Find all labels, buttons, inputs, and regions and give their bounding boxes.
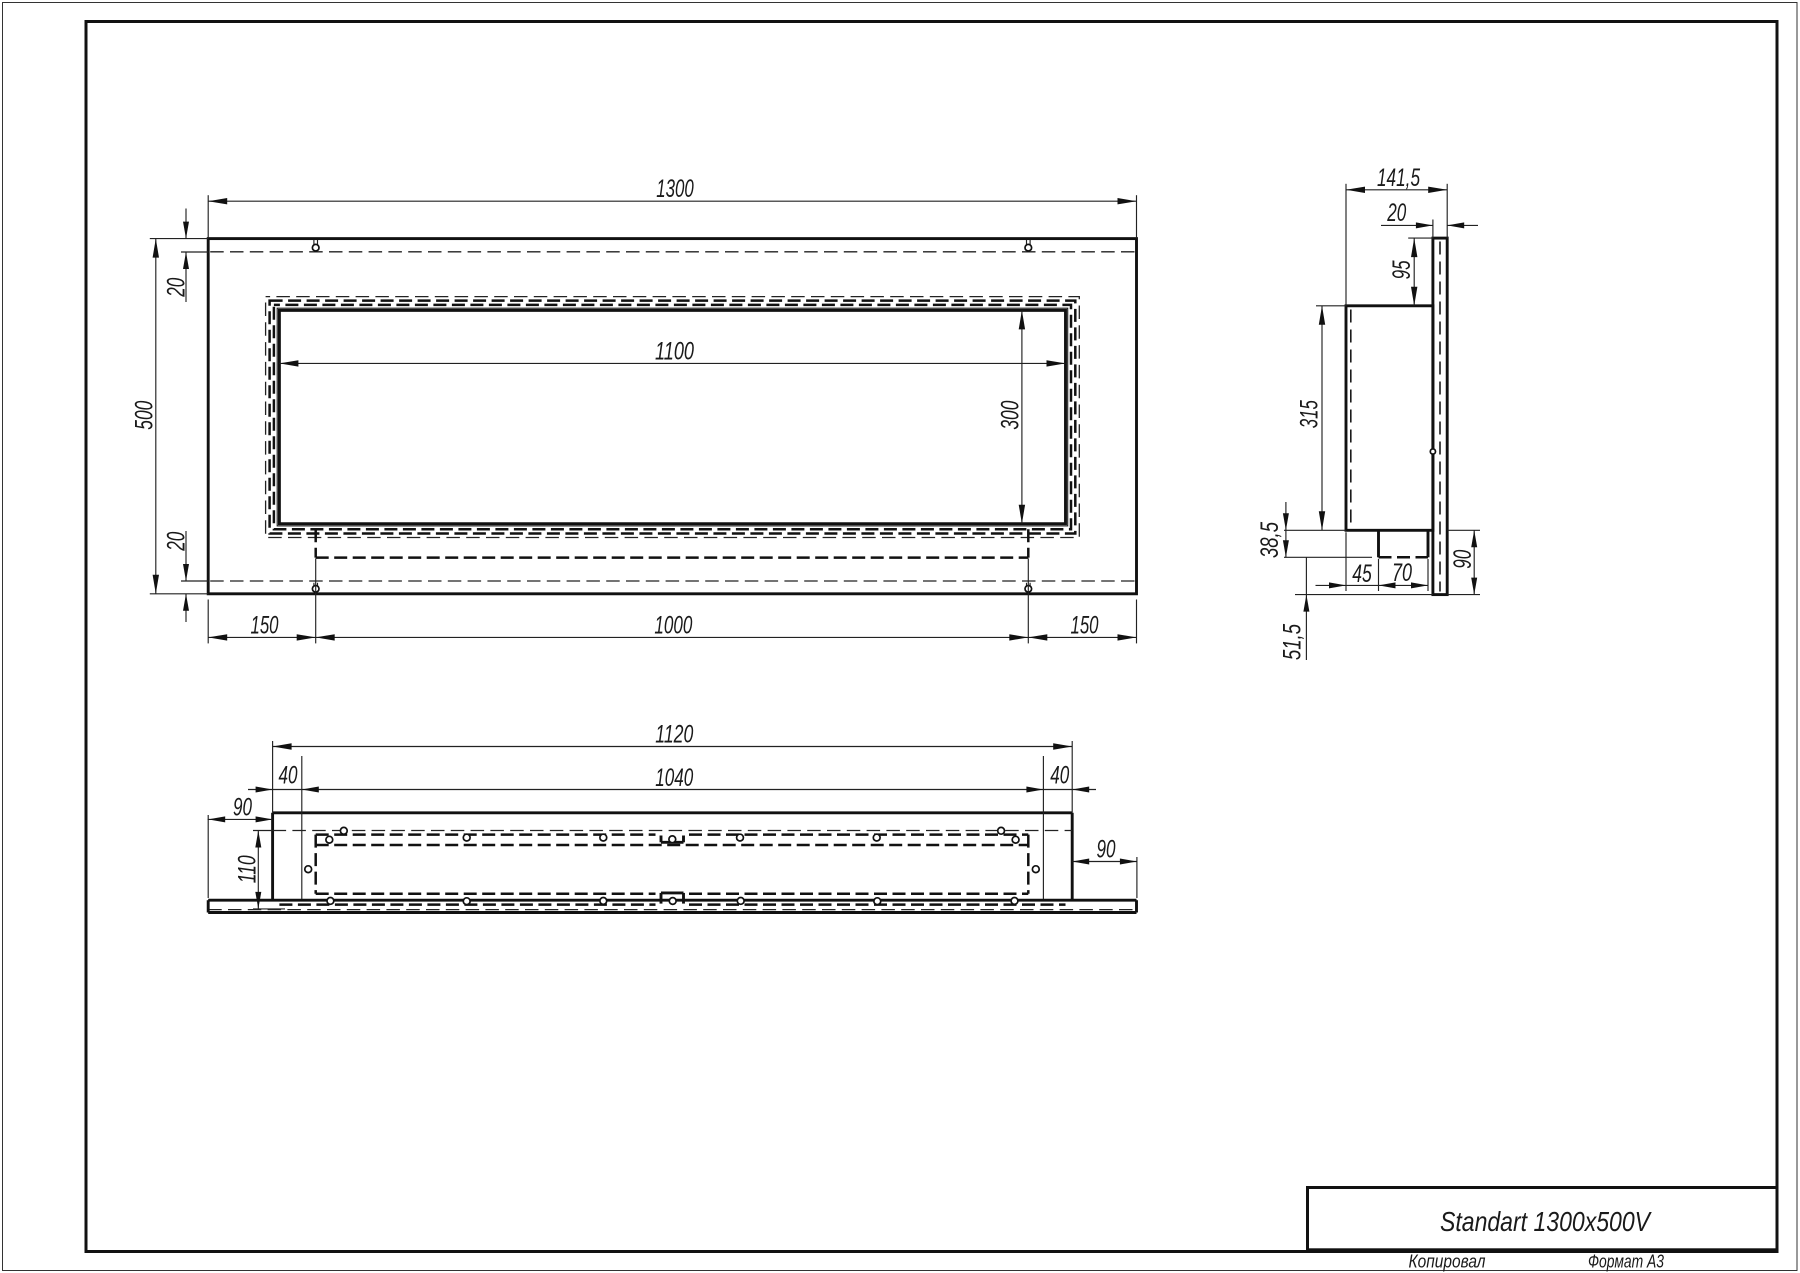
svg-text:Копировал: Копировал xyxy=(1409,1252,1486,1272)
svg-text:Standart 1300x500V: Standart 1300x500V xyxy=(1440,1206,1652,1237)
svg-text:315: 315 xyxy=(1296,400,1324,428)
svg-text:Формат А3: Формат А3 xyxy=(1588,1252,1664,1272)
svg-text:500: 500 xyxy=(130,401,158,430)
svg-text:90: 90 xyxy=(233,793,252,821)
svg-text:70: 70 xyxy=(1392,559,1412,587)
svg-text:51,5: 51,5 xyxy=(1278,624,1306,660)
svg-text:90: 90 xyxy=(1097,836,1116,864)
svg-text:141,5: 141,5 xyxy=(1377,164,1420,192)
svg-text:1040: 1040 xyxy=(655,764,693,792)
svg-text:300: 300 xyxy=(996,401,1024,430)
svg-text:1100: 1100 xyxy=(655,337,694,365)
svg-text:1000: 1000 xyxy=(654,611,692,639)
svg-text:45: 45 xyxy=(1352,560,1372,588)
svg-text:40: 40 xyxy=(1050,761,1069,789)
svg-text:90: 90 xyxy=(1449,550,1477,569)
svg-text:1300: 1300 xyxy=(656,175,694,203)
svg-text:40: 40 xyxy=(279,761,298,789)
svg-text:150: 150 xyxy=(251,611,279,639)
svg-text:38,5: 38,5 xyxy=(1256,522,1284,558)
svg-text:1120: 1120 xyxy=(655,721,693,749)
svg-text:20: 20 xyxy=(162,278,190,298)
svg-text:95: 95 xyxy=(1388,260,1416,279)
svg-text:150: 150 xyxy=(1071,611,1099,639)
svg-text:110: 110 xyxy=(233,855,261,883)
svg-text:20: 20 xyxy=(1387,199,1407,227)
svg-text:20: 20 xyxy=(163,532,191,552)
